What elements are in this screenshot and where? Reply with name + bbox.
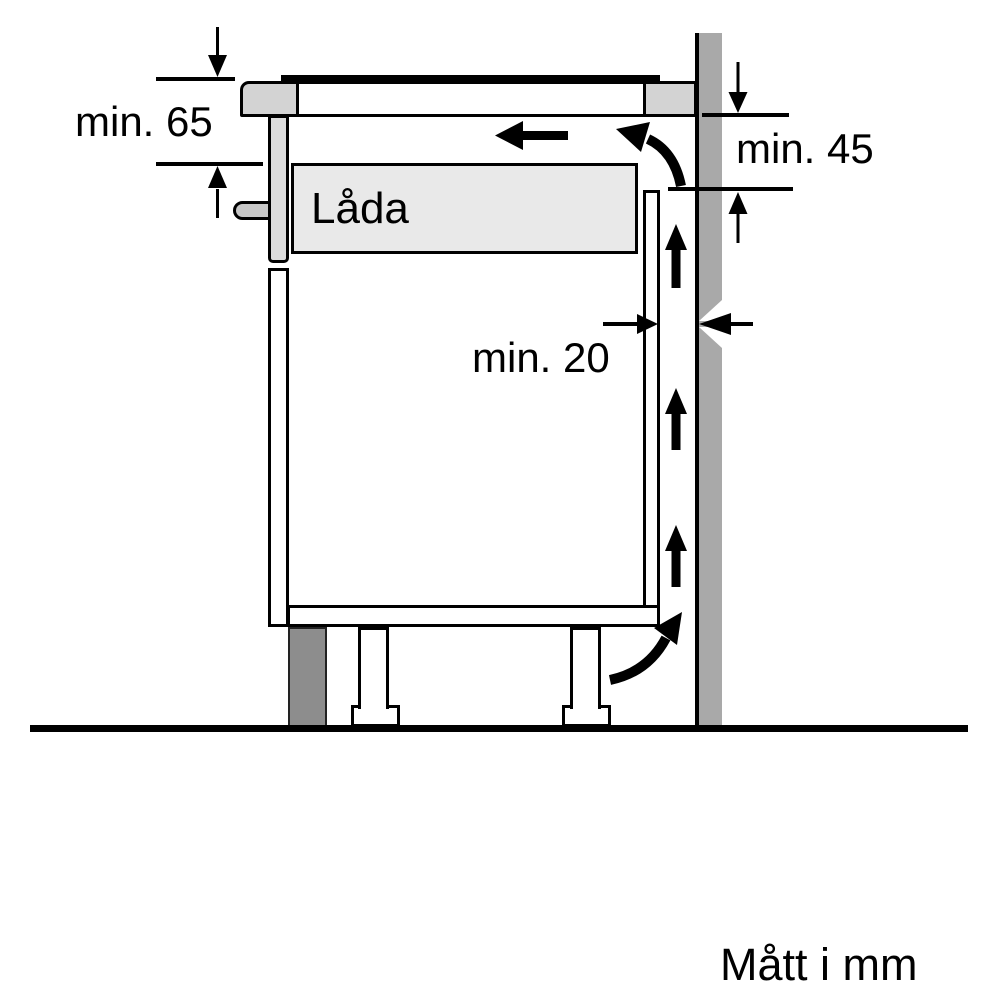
worktop-cutout xyxy=(296,81,646,117)
hob-glass-top xyxy=(281,75,660,82)
worktop-front-section xyxy=(240,81,299,117)
dim-arrow-up-65-icon xyxy=(208,166,227,218)
airflow-up-arrow-1-icon xyxy=(665,224,687,288)
dim-arrow-down-65-icon xyxy=(208,27,227,77)
dimension-label-45: min. 45 xyxy=(736,127,874,171)
wall xyxy=(695,33,722,727)
dimension-label-20: min. 20 xyxy=(472,336,610,380)
dim-line-45-top xyxy=(702,113,789,117)
airflow-left-arrow-icon xyxy=(495,121,568,150)
cabinet-bottom-panel xyxy=(287,605,660,627)
cabinet-plinth xyxy=(288,627,327,727)
airflow-up-arrow-3-icon xyxy=(665,525,687,587)
drawer-box: Låda xyxy=(291,163,638,254)
dimension-label-65: min. 65 xyxy=(75,100,213,144)
floor-line xyxy=(30,725,968,732)
hob-installation-diagram: Låda min. 65 min. 45 min. 20 Mått i mm xyxy=(0,0,1000,1000)
drawer-handle xyxy=(233,201,271,220)
units-note: Mått i mm xyxy=(720,941,918,988)
dim-line-65-top xyxy=(156,77,235,81)
cabinet-leg-front xyxy=(358,627,389,709)
airflow-up-arrow-2-icon xyxy=(665,388,687,450)
cabinet-back-panel xyxy=(643,190,660,610)
drawer-label: Låda xyxy=(311,184,409,234)
dim-arrow-down-45-icon xyxy=(729,62,748,113)
dim-line-65-bottom xyxy=(156,162,263,166)
worktop-back-section xyxy=(643,81,697,117)
cabinet-front-panel xyxy=(268,268,289,627)
dim-arrow-up-45-icon xyxy=(729,192,748,243)
cabinet-leg-back xyxy=(570,627,601,709)
drawer-front-panel xyxy=(268,115,289,263)
dim-line-45-bottom xyxy=(668,187,793,191)
